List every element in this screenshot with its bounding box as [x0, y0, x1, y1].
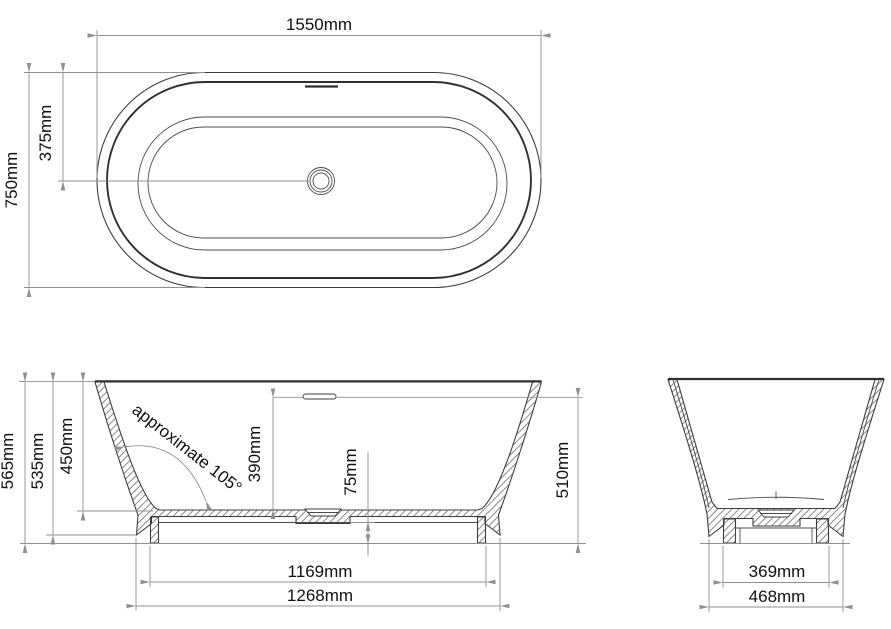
bathtub-three-view-drawing: 1550mm 750mm 375mm 565mm 535m [0, 0, 891, 629]
drain-circle [308, 168, 335, 195]
tub-outer-edge [97, 73, 541, 288]
dim-label-369: 369mm [749, 562, 806, 581]
dim-label-450: 450mm [57, 418, 76, 475]
front-view: 565mm 535mm 450mm approximate 105° 390mm… [0, 381, 586, 611]
technical-drawing-page: 1550mm 750mm 375mm 565mm 535m [0, 0, 891, 629]
top-view: 1550mm 750mm 375mm [2, 15, 541, 288]
dim-label-510: 510mm [553, 442, 572, 499]
right-foot [478, 517, 486, 543]
right-foot-end [817, 519, 829, 543]
dim-label-1268: 1268mm [287, 586, 353, 605]
angle-note-label: approximate 105° [129, 400, 246, 497]
dim-label-750: 750mm [2, 152, 21, 209]
dim-label-1550: 1550mm [286, 15, 352, 34]
dim-label-535: 535mm [28, 433, 47, 490]
dim-label-390: 390mm [245, 426, 264, 483]
tub-rim-edge [107, 82, 531, 278]
basin-floor-edge [148, 127, 497, 238]
side-view: 369mm 468mm [668, 379, 884, 612]
left-foot [151, 517, 159, 543]
dim-label-1169: 1169mm [288, 562, 353, 581]
dim-label-75: 75mm [341, 448, 360, 495]
overflow-slot [303, 394, 336, 399]
dim-label-375: 375mm [36, 105, 55, 162]
dim-label-468: 468mm [749, 587, 806, 606]
basin-top-edge [138, 117, 507, 250]
dim-label-565: 565mm [0, 433, 17, 490]
left-foot-end [724, 519, 736, 543]
